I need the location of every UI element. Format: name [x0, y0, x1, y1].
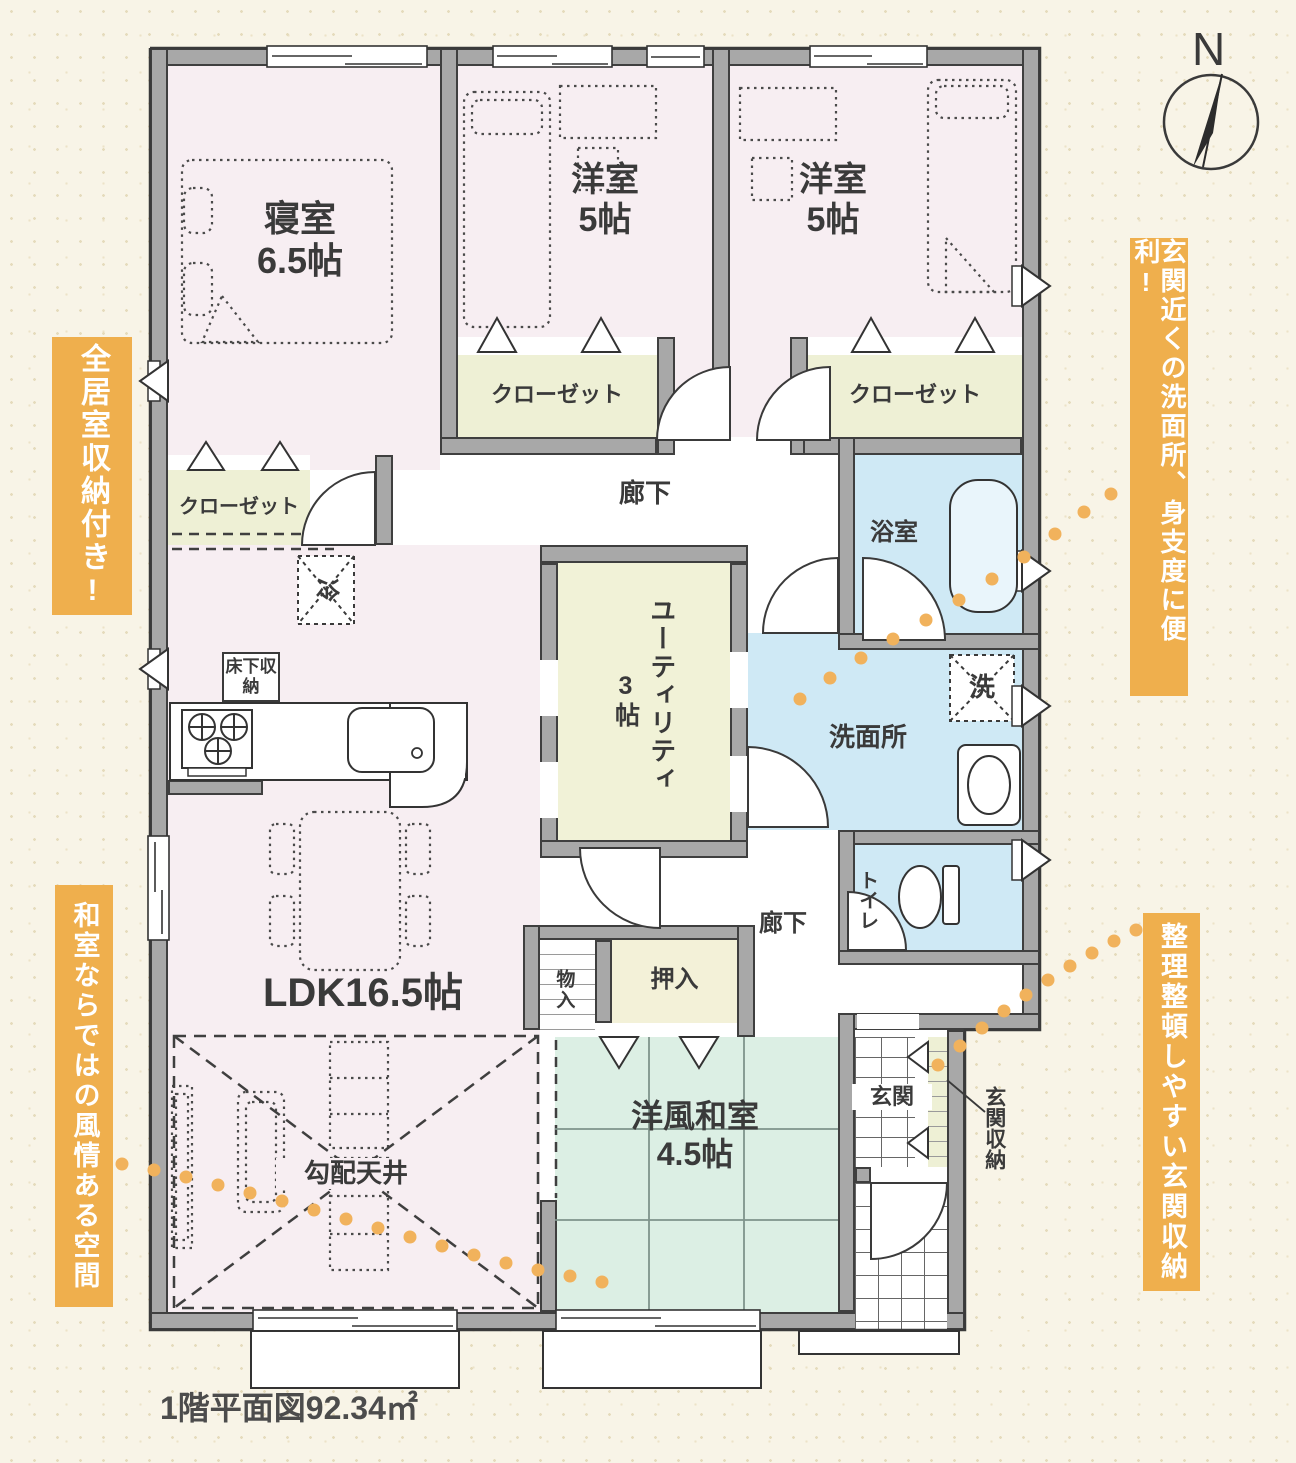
floor-plan-page: 寝室 6.5帖 洋室 5帖 洋室 5帖 クローゼット クローゼット クローゼット… [0, 0, 1296, 1463]
toilet-label: トイレ [854, 852, 878, 947]
compass-n-label: N [1192, 22, 1252, 76]
bath-label: 浴室 [844, 519, 944, 547]
dashed-openings [172, 534, 556, 1198]
kitchen-counter [170, 703, 467, 807]
callout-all-rooms-storage: 全居室収納付き! [52, 337, 132, 615]
door-entrance [871, 1183, 947, 1259]
casement-windows [140, 266, 1050, 880]
door-washroom-bottom [748, 747, 828, 827]
sink [348, 708, 434, 772]
callout-japanese-room: 和室ならではの風情ある空間 [55, 885, 113, 1307]
entrance-label: 玄関 [852, 1084, 932, 1110]
washer-label: 洗 [950, 672, 1014, 703]
western-center-label: 洋室 5帖 [515, 160, 695, 240]
storage-small-label: 物入 [552, 952, 574, 1028]
washroom-label: 洗面所 [793, 722, 943, 753]
closet-right-label: クローゼット [820, 382, 1010, 408]
western-right-label: 洋室 5帖 [743, 160, 923, 240]
western-name: 洋室 [515, 160, 695, 200]
oshiire-label: 押入 [622, 966, 727, 994]
callout-entrance-storage: 整理整頓しやすい玄関収納 [1143, 913, 1200, 1291]
bedroom-name: 寝室 [200, 198, 400, 240]
door-washroom-top [763, 558, 838, 633]
tatami-grid [555, 1037, 838, 1312]
western-name: 洋室 [743, 160, 923, 200]
closet-bedroom-label: クローゼット [149, 496, 329, 520]
plan-caption: 1階平面図92.34㎡ [160, 1390, 580, 1428]
bedroom-size: 6.5帖 [200, 240, 400, 282]
callout-washroom-near-entrance: 玄関近くの洗面所、身支度に便利! [1130, 238, 1188, 696]
utility-name-label: ユーティリティ [646, 585, 677, 805]
compass [1164, 74, 1258, 169]
compass-needle [1193, 74, 1222, 167]
western-size: 5帖 [743, 200, 923, 240]
bedroom-label: 寝室 6.5帖 [200, 198, 400, 283]
vanity [958, 745, 1020, 825]
bath-tub [950, 480, 1017, 612]
toilet-fixture [899, 866, 959, 928]
fridge-label: 冷 [312, 562, 340, 618]
ldk-label: LDK16.5帖 [213, 970, 513, 1017]
door-bath [863, 558, 945, 640]
living-furniture [172, 1042, 388, 1270]
sloped-ceiling-label: 勾配天井 [276, 1158, 436, 1189]
dining-set [270, 812, 430, 970]
floor-storage-label: 床下収納 [222, 652, 280, 702]
tatami-label: 洋風和室 4.5帖 [595, 1098, 795, 1174]
closet-center-label: クローゼット [462, 382, 652, 408]
entrance-storage-label: 玄関収納 [981, 1060, 1006, 1195]
door-ldk [580, 848, 660, 928]
door-western-center [657, 367, 730, 440]
terrace-steps [251, 1331, 959, 1388]
hallway-bottom-label: 廊下 [733, 910, 833, 938]
western-size: 5帖 [515, 200, 695, 240]
tatami-name: 洋風和室 [595, 1098, 795, 1136]
tatami-size: 4.5帖 [595, 1136, 795, 1174]
hallway-top-label: 廊下 [595, 478, 695, 509]
utility-size-label: 3帖 [610, 665, 640, 735]
